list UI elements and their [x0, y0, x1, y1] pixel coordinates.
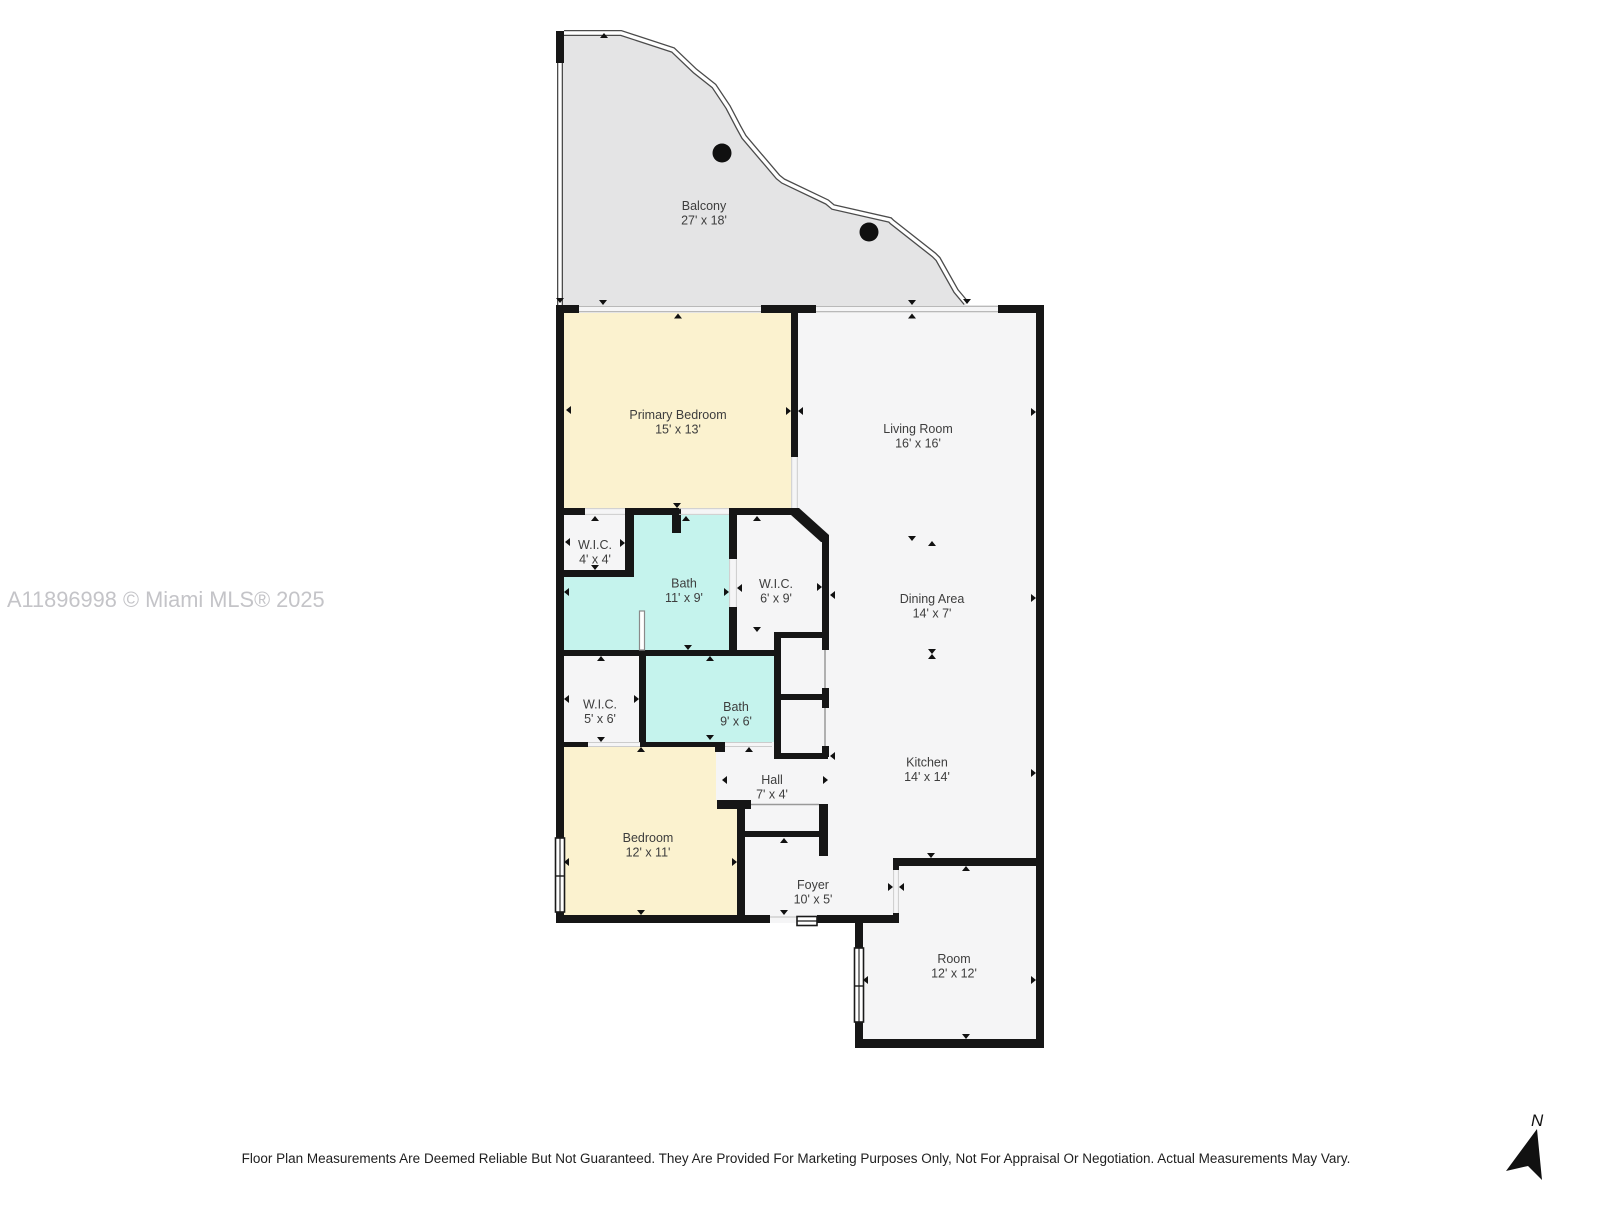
svg-text:Dining Area: Dining Area [900, 592, 965, 606]
svg-text:9' x 6': 9' x 6' [720, 715, 752, 729]
svg-text:Bath: Bath [723, 700, 749, 714]
svg-text:27' x 18': 27' x 18' [681, 214, 727, 228]
svg-text:4' x 4': 4' x 4' [579, 553, 611, 567]
svg-text:W.I.C.: W.I.C. [583, 698, 617, 712]
svg-text:5' x 6': 5' x 6' [584, 712, 616, 726]
svg-text:14' x 14': 14' x 14' [904, 770, 950, 784]
svg-text:W.I.C.: W.I.C. [759, 577, 793, 591]
svg-text:12' x 11': 12' x 11' [626, 846, 671, 860]
svg-text:Balcony: Balcony [682, 199, 727, 213]
svg-text:A11896998 © Miami MLS® 2025: A11896998 © Miami MLS® 2025 [7, 587, 325, 612]
svg-text:12' x 12': 12' x 12' [931, 967, 977, 981]
svg-text:Kitchen: Kitchen [906, 756, 948, 770]
svg-text:Primary Bedroom: Primary Bedroom [629, 408, 726, 422]
svg-text:Bedroom: Bedroom [623, 831, 674, 845]
svg-text:Hall: Hall [761, 773, 783, 787]
svg-text:11' x 9': 11' x 9' [665, 591, 703, 605]
svg-text:6' x 9': 6' x 9' [760, 592, 792, 606]
svg-text:Foyer: Foyer [797, 878, 829, 892]
svg-text:15' x 13': 15' x 13' [655, 423, 701, 437]
svg-text:7' x 4': 7' x 4' [756, 788, 788, 802]
svg-text:Living Room: Living Room [883, 422, 952, 436]
svg-text:Room: Room [937, 952, 970, 966]
svg-text:14' x 7': 14' x 7' [913, 607, 952, 621]
svg-text:W.I.C.: W.I.C. [578, 538, 612, 552]
svg-text:Floor Plan Measurements Are De: Floor Plan Measurements Are Deemed Relia… [242, 1151, 1351, 1166]
svg-text:10' x 5': 10' x 5' [794, 893, 833, 907]
svg-text:16' x 16': 16' x 16' [895, 437, 941, 451]
svg-text:N: N [1531, 1111, 1544, 1130]
svg-text:Bath: Bath [671, 577, 697, 591]
